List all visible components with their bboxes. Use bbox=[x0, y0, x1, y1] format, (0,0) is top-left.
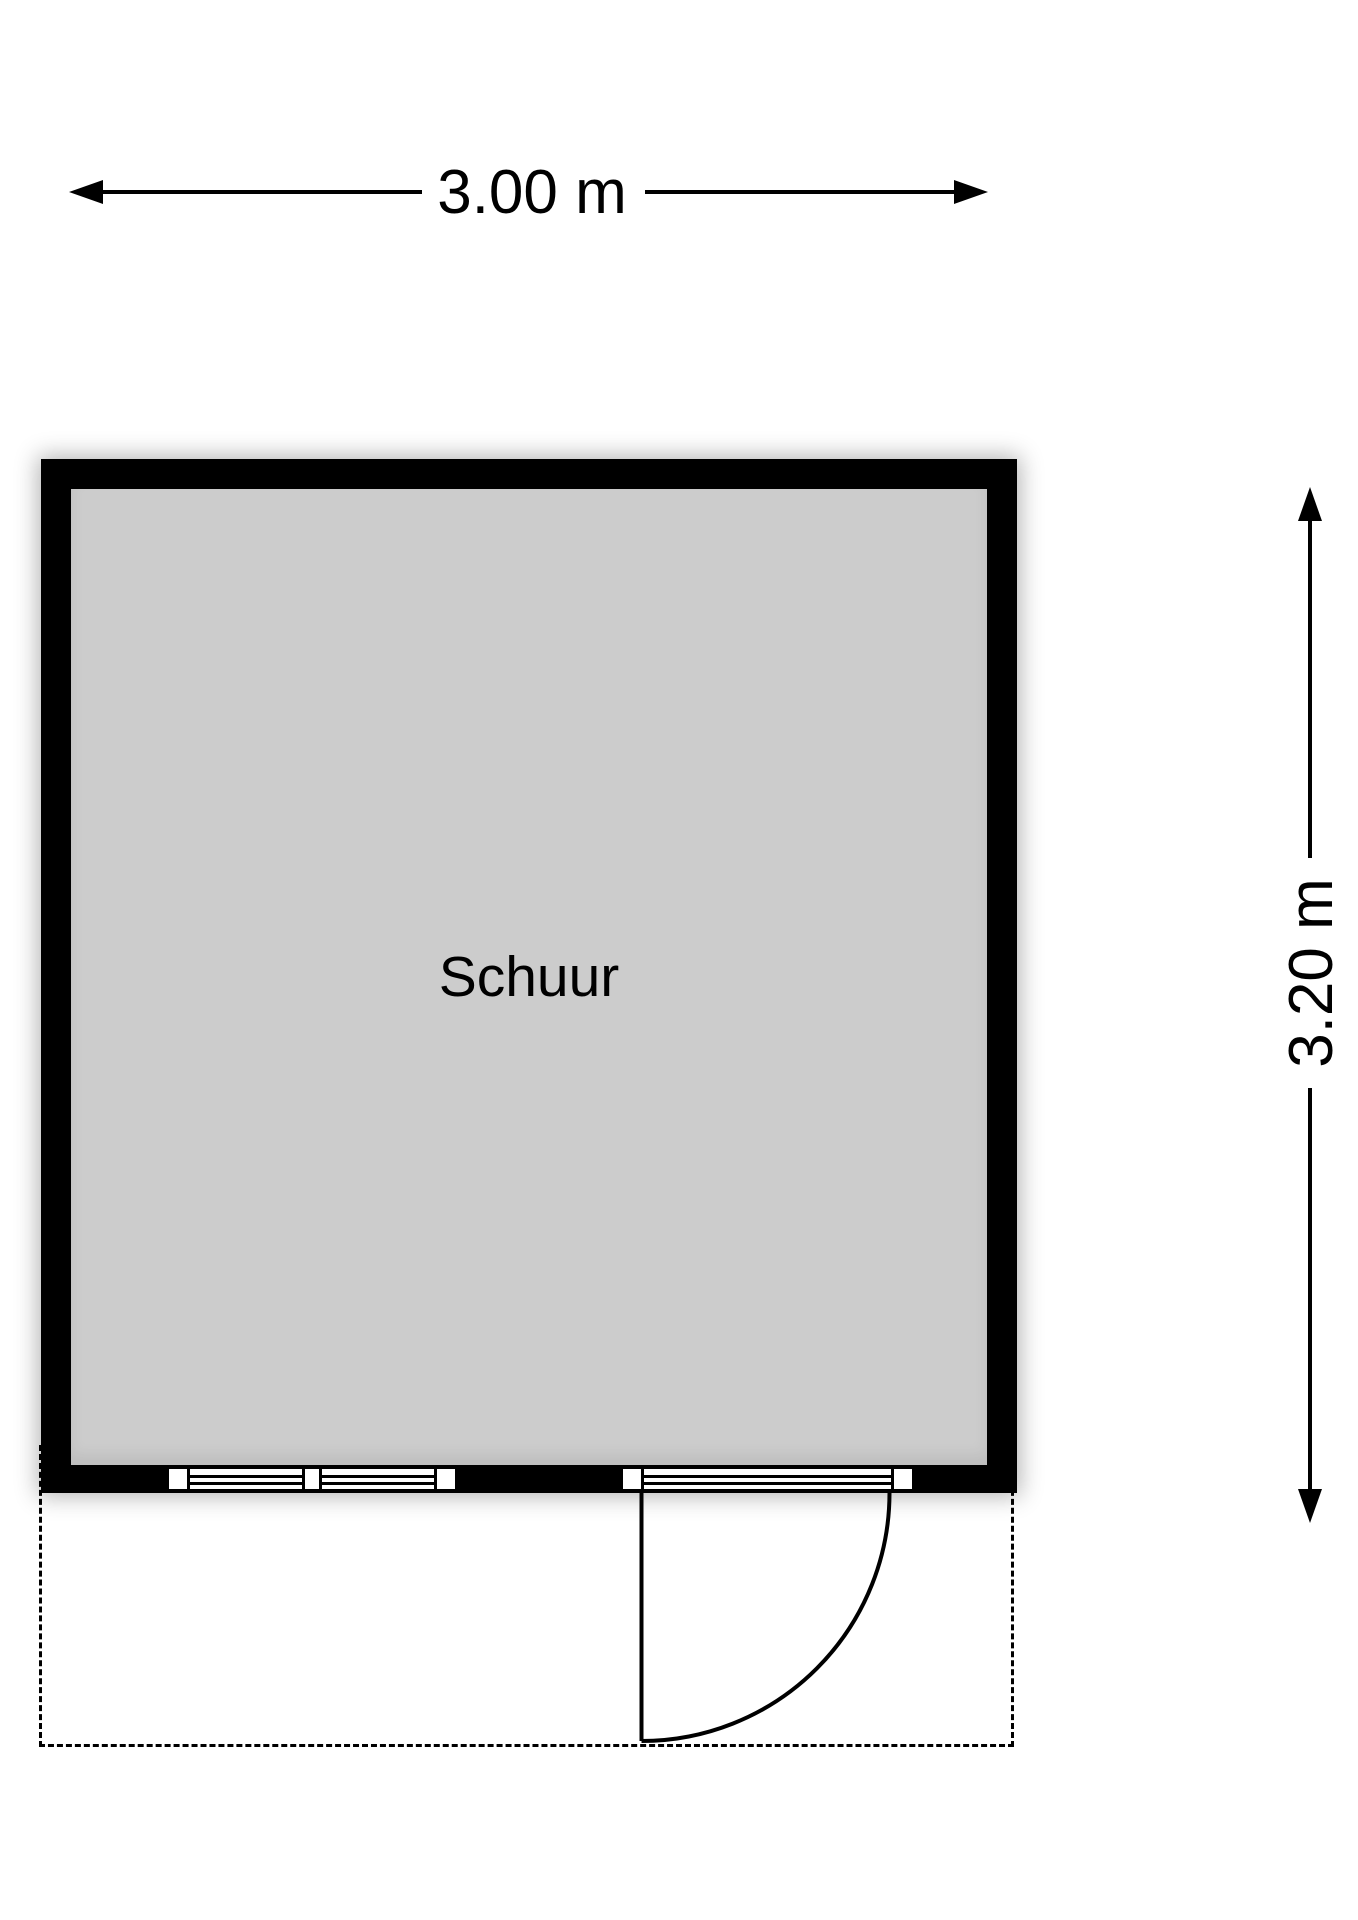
door-swing-arc bbox=[642, 1493, 890, 1741]
door-swing bbox=[0, 0, 1358, 1920]
floor-plan: 3.00 m 3.20 m Schuur bbox=[0, 0, 1358, 1920]
